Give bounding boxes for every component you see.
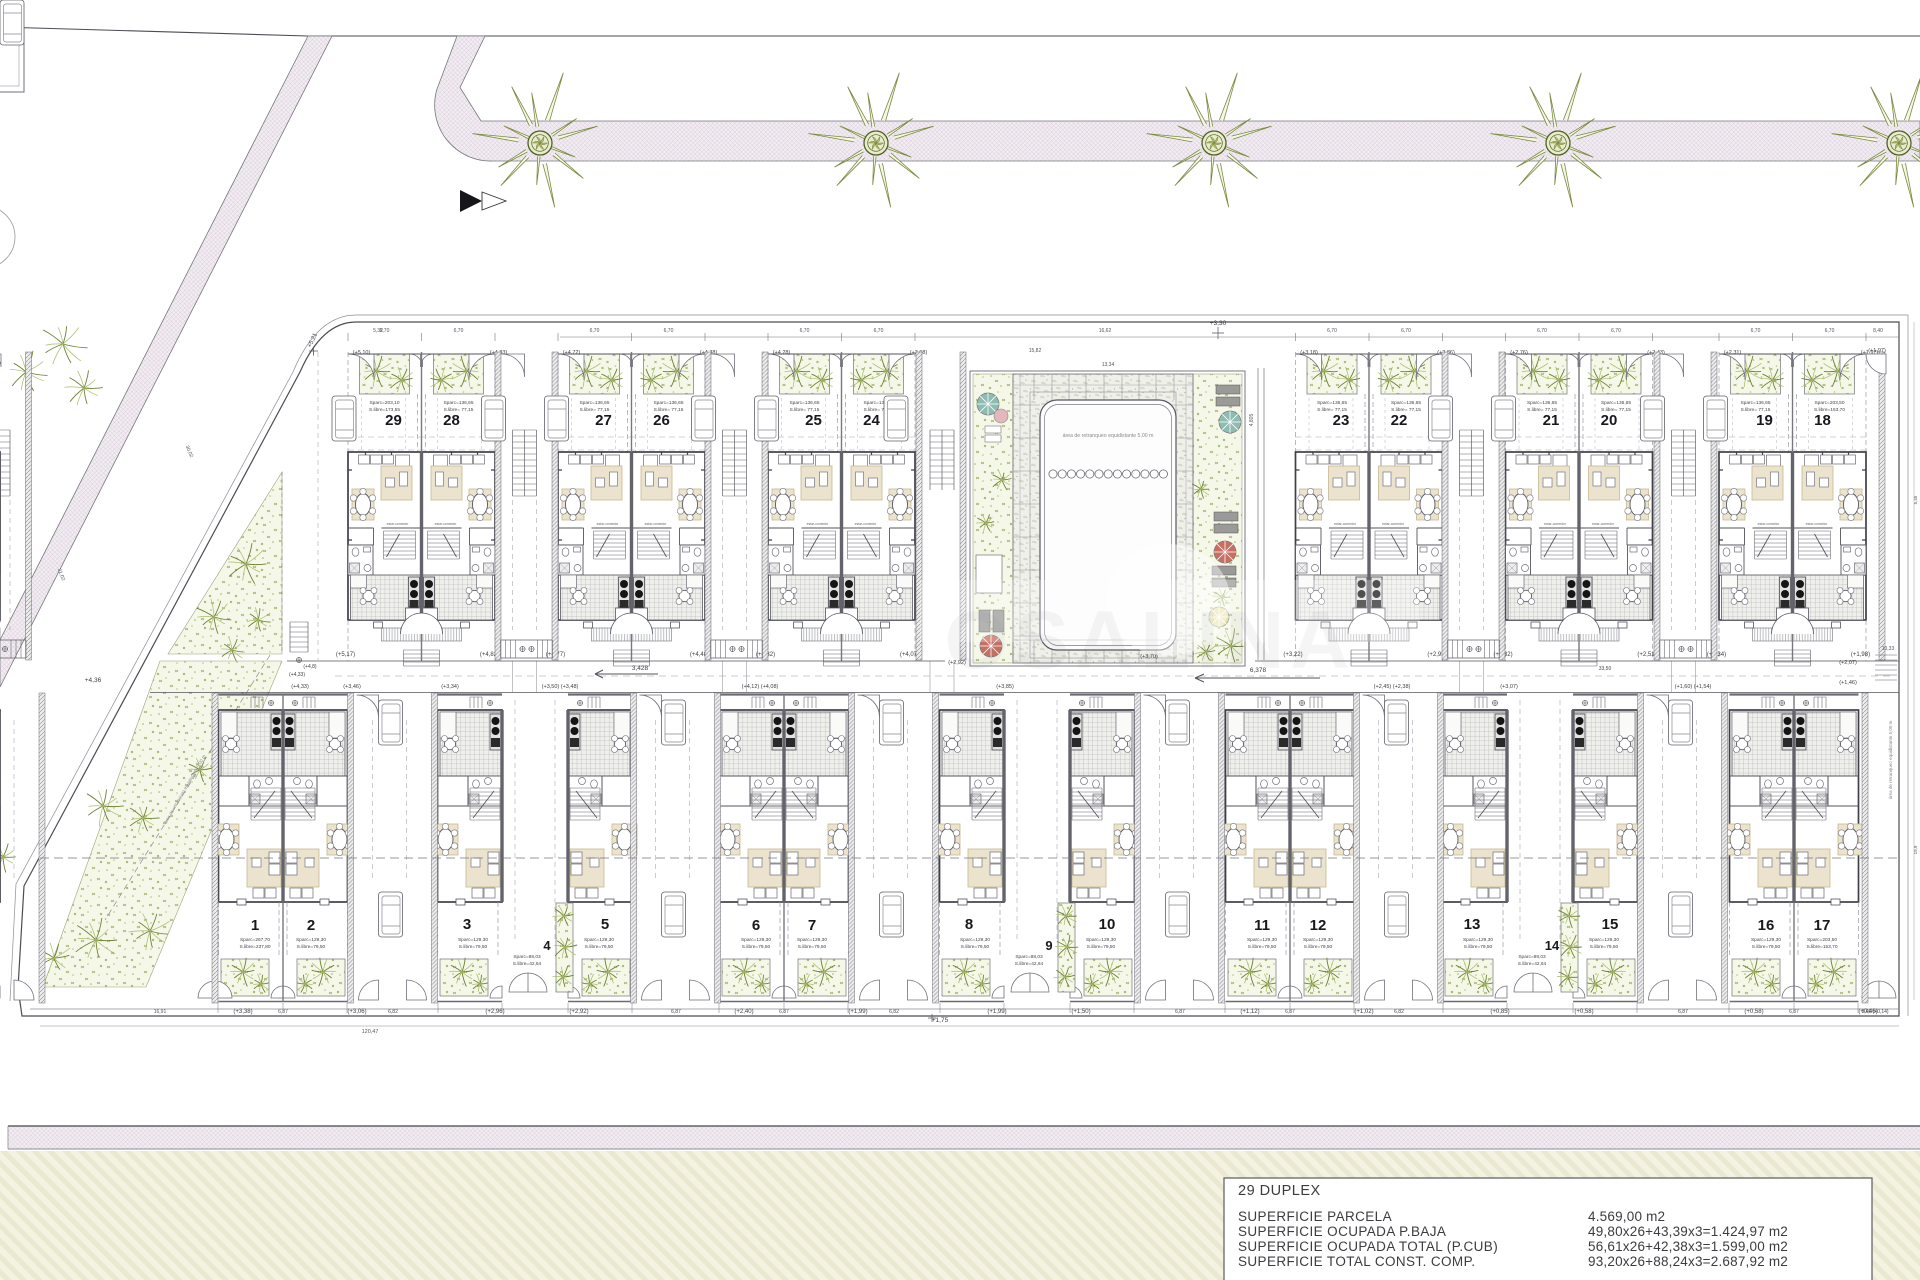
svg-text:6,70: 6,70 bbox=[1537, 328, 1547, 334]
svg-text:S.libre=79,50: S.libre=79,50 bbox=[459, 944, 488, 950]
svg-text:S.libre=42,64: S.libre=42,64 bbox=[513, 961, 542, 967]
svg-text:(+2,76): (+2,76) bbox=[1510, 350, 1528, 356]
svg-text:(+3,50) (+3,48): (+3,50) (+3,48) bbox=[542, 684, 579, 690]
svg-text:27: 27 bbox=[595, 412, 612, 429]
svg-text:S.libre=79,50: S.libre=79,50 bbox=[1590, 944, 1619, 950]
svg-text:20: 20 bbox=[1601, 412, 1618, 429]
svg-text:S.libre= 77,15: S.libre= 77,15 bbox=[1317, 407, 1347, 413]
svg-text:OSALINA: OSALINA bbox=[945, 595, 1356, 686]
svg-text:S.libre=79,50: S.libre=79,50 bbox=[1464, 944, 1493, 950]
svg-text:11: 11 bbox=[1254, 917, 1270, 934]
svg-text:18: 18 bbox=[1814, 412, 1831, 429]
svg-text:6,70: 6,70 bbox=[1327, 328, 1337, 334]
svg-text:19,9: 19,9 bbox=[1913, 845, 1918, 854]
svg-text:Sparc=129,30: Sparc=129,30 bbox=[1751, 937, 1781, 943]
svg-text:S.libre= 77,15: S.libre= 77,15 bbox=[1391, 407, 1421, 413]
svg-text:estar-comedor: estar-comedor bbox=[807, 522, 830, 526]
svg-text:(+0,85): (+0,85) bbox=[1490, 1009, 1509, 1015]
svg-text:8: 8 bbox=[965, 916, 973, 933]
svg-text:(+2,45) (+2,38): (+2,45) (+2,38) bbox=[1374, 684, 1411, 690]
svg-text:6,87: 6,87 bbox=[1175, 1009, 1185, 1015]
svg-text:1: 1 bbox=[251, 917, 259, 934]
svg-text:5,45: 5,45 bbox=[1913, 495, 1918, 504]
svg-text:6,82: 6,82 bbox=[1394, 1009, 1404, 1015]
svg-text:(+1,46): (+1,46) bbox=[1839, 680, 1857, 686]
svg-text:6,82: 6,82 bbox=[388, 1009, 398, 1015]
svg-text:S.libre= 77,15: S.libre= 77,15 bbox=[1527, 407, 1557, 413]
svg-text:Sparc=136,65: Sparc=136,65 bbox=[1317, 400, 1347, 406]
svg-text:Sparc=129,30: Sparc=129,30 bbox=[1463, 937, 1493, 943]
svg-text:6,70: 6,70 bbox=[454, 328, 464, 334]
svg-text:SUPERFICIE OCUPADA TOTAL (P.CU: SUPERFICIE OCUPADA TOTAL (P.CUB) bbox=[1238, 1239, 1498, 1254]
svg-text:Sparc=129,30: Sparc=129,30 bbox=[458, 937, 488, 943]
svg-text:Sparc=129,30: Sparc=129,30 bbox=[1589, 937, 1619, 943]
svg-text:2: 2 bbox=[307, 917, 315, 934]
svg-text:6,70: 6,70 bbox=[380, 328, 390, 334]
svg-text:estar-comedor: estar-comedor bbox=[1544, 522, 1567, 526]
svg-text:8,46 (+0,14): 8,46 (+0,14) bbox=[1861, 1009, 1888, 1015]
svg-text:6,70: 6,70 bbox=[1751, 328, 1761, 334]
svg-text:(+4,33): (+4,33) bbox=[289, 672, 305, 678]
svg-text:17: 17 bbox=[1814, 917, 1831, 934]
svg-text:S.libre= 77,15: S.libre= 77,15 bbox=[654, 407, 684, 413]
svg-text:(+1,02): (+1,02) bbox=[1354, 1009, 1373, 1015]
svg-text:S.libre=153,70: S.libre=153,70 bbox=[1814, 407, 1845, 413]
svg-text:Sparc=136,65: Sparc=136,65 bbox=[789, 400, 819, 406]
svg-text:9: 9 bbox=[1045, 938, 1052, 953]
svg-text:21: 21 bbox=[1543, 412, 1560, 429]
svg-text:120,47: 120,47 bbox=[362, 1029, 379, 1035]
svg-text:Sparc=203,10: Sparc=203,10 bbox=[369, 400, 399, 406]
svg-text:22: 22 bbox=[1391, 412, 1408, 429]
svg-text:S.libre= 77,15: S.libre= 77,15 bbox=[580, 407, 610, 413]
svg-text:(+4,8): (+4,8) bbox=[303, 664, 317, 670]
svg-text:6,70: 6,70 bbox=[1401, 328, 1411, 334]
svg-text:S.libre= 77,15: S.libre= 77,15 bbox=[1741, 407, 1771, 413]
svg-text:S.libre=79,50: S.libre=79,50 bbox=[961, 944, 990, 950]
svg-text:(+0,58): (+0,58) bbox=[1744, 1009, 1763, 1015]
svg-text:(+1,97): (+1,97) bbox=[1868, 348, 1886, 354]
svg-text:25: 25 bbox=[805, 412, 822, 429]
svg-text:estar-comedor: estar-comedor bbox=[1806, 522, 1829, 526]
svg-text:SUPERFICIE OCUPADA P.BAJA: SUPERFICIE OCUPADA P.BAJA bbox=[1238, 1224, 1446, 1239]
svg-text:19: 19 bbox=[1756, 412, 1773, 429]
svg-text:6,70: 6,70 bbox=[874, 328, 884, 334]
svg-text:Sparc=129,30: Sparc=129,30 bbox=[960, 937, 990, 943]
svg-text:Sparc=129,30: Sparc=129,30 bbox=[1247, 937, 1277, 943]
svg-text:13: 13 bbox=[1464, 916, 1481, 933]
svg-text:14: 14 bbox=[1545, 938, 1560, 953]
svg-text:S.libre=42,64: S.libre=42,64 bbox=[1015, 961, 1044, 967]
svg-text:(+1,98): (+1,98) bbox=[1851, 652, 1870, 658]
svg-text:(+3,06): (+3,06) bbox=[347, 1009, 366, 1015]
svg-text:estar-comedor: estar-comedor bbox=[387, 522, 410, 526]
svg-text:93,20x26+88,24x3=2.687,92 m2: 93,20x26+88,24x3=2.687,92 m2 bbox=[1588, 1254, 1788, 1269]
svg-text:8,40: 8,40 bbox=[1873, 328, 1883, 334]
svg-text:(+4,33): (+4,33) bbox=[291, 684, 309, 690]
svg-text:estar-comedor: estar-comedor bbox=[435, 522, 458, 526]
svg-text:16,62: 16,62 bbox=[1099, 328, 1112, 334]
svg-text:Sparc=136,65: Sparc=136,65 bbox=[1527, 400, 1557, 406]
svg-text:SUPERFICIE TOTAL CONST. COMP.: SUPERFICIE TOTAL CONST. COMP. bbox=[1238, 1254, 1475, 1269]
svg-text:estar-comedor: estar-comedor bbox=[1334, 522, 1357, 526]
svg-text:área de retranqueo equidistant: área de retranqueo equidistante 5,00 m bbox=[1888, 720, 1893, 799]
svg-text:10: 10 bbox=[1099, 916, 1116, 933]
svg-text:6: 6 bbox=[752, 917, 760, 934]
svg-text:4.569,00 m2: 4.569,00 m2 bbox=[1588, 1209, 1665, 1224]
svg-text:S.libre=153,70: S.libre=153,70 bbox=[1806, 944, 1837, 950]
svg-text:Sparc=88,03: Sparc=88,03 bbox=[1015, 954, 1043, 960]
svg-text:28: 28 bbox=[443, 412, 460, 429]
svg-text:(+2,96): (+2,96) bbox=[485, 1009, 504, 1015]
svg-text:15,82: 15,82 bbox=[1029, 348, 1042, 354]
svg-text:26: 26 bbox=[653, 412, 670, 429]
svg-text:Sparc=129,30: Sparc=129,30 bbox=[296, 937, 326, 943]
svg-text:(+2,07): (+2,07) bbox=[1839, 660, 1857, 666]
svg-text:16,91: 16,91 bbox=[154, 1009, 167, 1015]
svg-text:S.libre=237,80: S.libre=237,80 bbox=[239, 944, 270, 950]
svg-text:4,805: 4,805 bbox=[1249, 414, 1255, 427]
svg-text:+4,36: +4,36 bbox=[85, 677, 102, 684]
svg-text:Sparc=129,30: Sparc=129,30 bbox=[584, 937, 614, 943]
svg-text:7: 7 bbox=[808, 917, 816, 934]
svg-text:(+1,99): (+1,99) bbox=[987, 1009, 1006, 1015]
svg-text:(+2,92): (+2,92) bbox=[569, 1009, 588, 1015]
svg-text:S.libre=79,50: S.libre=79,50 bbox=[1752, 944, 1781, 950]
svg-text:Sparc=129,30: Sparc=129,30 bbox=[1303, 937, 1333, 943]
svg-text:Sparc=203,50: Sparc=203,50 bbox=[1807, 937, 1837, 943]
svg-text:(+2,40): (+2,40) bbox=[734, 1009, 753, 1015]
svg-text:(+3,34): (+3,34) bbox=[441, 684, 459, 690]
svg-text:33,50: 33,50 bbox=[1599, 666, 1612, 672]
svg-text:(+4,28): (+4,28) bbox=[773, 350, 791, 356]
svg-text:(+4,72): (+4,72) bbox=[563, 350, 581, 356]
svg-text:13,34: 13,34 bbox=[1102, 362, 1115, 368]
svg-text:estar-comedor: estar-comedor bbox=[1758, 522, 1781, 526]
svg-text:3,428: 3,428 bbox=[632, 665, 649, 672]
svg-text:6,70: 6,70 bbox=[1611, 328, 1621, 334]
svg-text:S.libre=79,50: S.libre=79,50 bbox=[742, 944, 771, 950]
svg-text:(+1,99): (+1,99) bbox=[848, 1009, 867, 1015]
svg-text:15: 15 bbox=[1602, 916, 1619, 933]
svg-text:16: 16 bbox=[1758, 917, 1775, 934]
svg-text:Sparc=136,65: Sparc=136,65 bbox=[1601, 400, 1631, 406]
svg-text:(+1,12): (+1,12) bbox=[1240, 1009, 1259, 1015]
svg-text:(+3,07): (+3,07) bbox=[1500, 684, 1518, 690]
svg-text:SUPERFICIE PARCELA: SUPERFICIE PARCELA bbox=[1238, 1209, 1392, 1224]
svg-text:(+5,17): (+5,17) bbox=[336, 652, 355, 658]
svg-text:S.libre=173,55: S.libre=173,55 bbox=[369, 407, 400, 413]
svg-text:Sparc=129,30: Sparc=129,30 bbox=[1086, 937, 1116, 943]
svg-text:6,82: 6,82 bbox=[889, 1009, 899, 1015]
svg-text:S.libre=79,50: S.libre=79,50 bbox=[1087, 944, 1116, 950]
svg-text:Sparc=136,65: Sparc=136,65 bbox=[653, 400, 683, 406]
svg-text:10,33: 10,33 bbox=[1882, 646, 1895, 652]
svg-text:24: 24 bbox=[863, 412, 880, 429]
svg-text:S.libre=42,64: S.libre=42,64 bbox=[1518, 961, 1547, 967]
svg-text:(+4,12) (+4,08): (+4,12) (+4,08) bbox=[742, 684, 779, 690]
svg-text:Sparc=267,70: Sparc=267,70 bbox=[240, 937, 270, 943]
svg-text:6,70: 6,70 bbox=[590, 328, 600, 334]
svg-text:3: 3 bbox=[463, 916, 471, 933]
svg-text:29 DUPLEX: 29 DUPLEX bbox=[1238, 1183, 1321, 1199]
svg-text:6,70: 6,70 bbox=[800, 328, 810, 334]
svg-text:S.libre=79,50: S.libre=79,50 bbox=[1304, 944, 1333, 950]
svg-text:S.libre=79,50: S.libre=79,50 bbox=[297, 944, 326, 950]
svg-text:49,80x26+43,39x3=1.424,97 m2: 49,80x26+43,39x3=1.424,97 m2 bbox=[1588, 1224, 1788, 1239]
svg-text:29: 29 bbox=[385, 412, 402, 429]
svg-text:estar-comedor: estar-comedor bbox=[645, 522, 668, 526]
svg-text:56,61x26+42,38x3=1.599,00 m2: 56,61x26+42,38x3=1.599,00 m2 bbox=[1588, 1239, 1788, 1254]
svg-text:(+3,46): (+3,46) bbox=[343, 684, 361, 690]
svg-text:estar-comedor: estar-comedor bbox=[1592, 522, 1615, 526]
svg-text:23: 23 bbox=[1333, 412, 1350, 429]
svg-text:área de retranqueo equidistant: área de retranqueo equidistante 5,00 m bbox=[1063, 433, 1154, 439]
svg-text:S.libre=79,50: S.libre=79,50 bbox=[585, 944, 614, 950]
svg-text:Sparc=136,65: Sparc=136,65 bbox=[579, 400, 609, 406]
svg-text:Sparc=203,50: Sparc=203,50 bbox=[1814, 400, 1844, 406]
svg-text:(+2,31): (+2,31) bbox=[1724, 350, 1742, 356]
svg-text:6,70: 6,70 bbox=[664, 328, 674, 334]
svg-text:Sparc=136,65: Sparc=136,65 bbox=[1740, 400, 1770, 406]
svg-text:Sparc=129,30: Sparc=129,30 bbox=[797, 937, 827, 943]
svg-text:(+1,50): (+1,50) bbox=[1071, 1009, 1090, 1015]
svg-text:Sparc=136,65: Sparc=136,65 bbox=[1391, 400, 1421, 406]
svg-text:(+3,38): (+3,38) bbox=[233, 1009, 252, 1015]
svg-text:4: 4 bbox=[543, 938, 551, 953]
svg-text:(+2,51): (+2,51) bbox=[1637, 652, 1656, 658]
svg-text:Sparc=88,03: Sparc=88,03 bbox=[513, 954, 541, 960]
svg-text:estar-comedor: estar-comedor bbox=[1382, 522, 1405, 526]
svg-text:Sparc=129,30: Sparc=129,30 bbox=[741, 937, 771, 943]
svg-text:S.libre=79,50: S.libre=79,50 bbox=[798, 944, 827, 950]
svg-text:Sparc=88,03: Sparc=88,03 bbox=[1518, 954, 1546, 960]
svg-text:S.libre= 77,15: S.libre= 77,15 bbox=[790, 407, 820, 413]
svg-text:estar-comedor: estar-comedor bbox=[597, 522, 620, 526]
svg-text:(+3,18): (+3,18) bbox=[1300, 350, 1318, 356]
svg-text:+3,30: +3,30 bbox=[1210, 320, 1227, 327]
svg-text:12: 12 bbox=[1310, 917, 1327, 934]
svg-text:(+0,58): (+0,58) bbox=[1574, 1009, 1593, 1015]
svg-text:S.libre= 77,15: S.libre= 77,15 bbox=[1601, 407, 1631, 413]
svg-text:6,70: 6,70 bbox=[1825, 328, 1835, 334]
svg-text:6,87: 6,87 bbox=[1678, 1009, 1688, 1015]
svg-text:estar-comedor: estar-comedor bbox=[855, 522, 878, 526]
svg-text:5: 5 bbox=[601, 916, 609, 933]
svg-text:6,87: 6,87 bbox=[671, 1009, 681, 1015]
svg-text:(+5,10): (+5,10) bbox=[353, 350, 371, 356]
svg-text:Sparc=136,65: Sparc=136,65 bbox=[443, 400, 473, 406]
svg-text:(+1,60) (+1,54): (+1,60) (+1,54) bbox=[1675, 684, 1712, 690]
svg-text:S.libre= 77,15: S.libre= 77,15 bbox=[444, 407, 474, 413]
svg-text:S.libre=79,50: S.libre=79,50 bbox=[1248, 944, 1277, 950]
